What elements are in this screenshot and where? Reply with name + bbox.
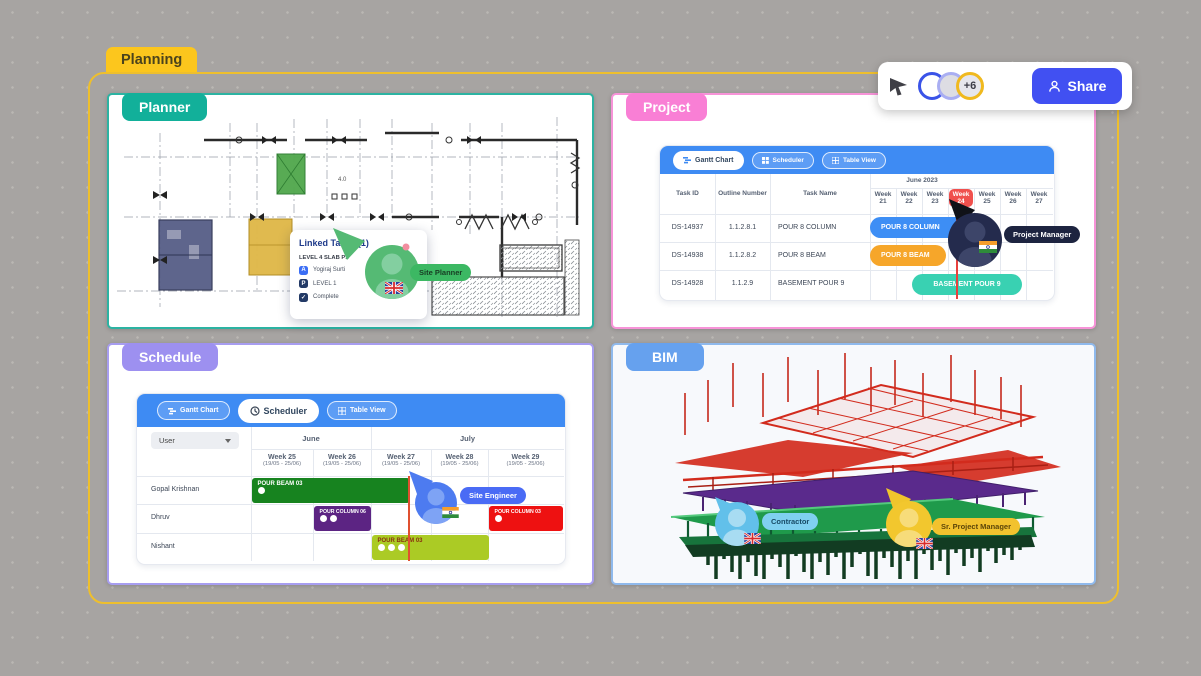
user-row-label: Gopal Krishnan — [151, 486, 199, 493]
status-badge-icon: ✓ — [299, 293, 308, 302]
cell-outline: 1.1.2.9 — [715, 280, 770, 287]
sr-project-manager-tag: Sr. Project Manager — [932, 518, 1020, 535]
share-button[interactable]: Share — [1032, 68, 1122, 104]
tab-table-view-label: Table View — [843, 157, 876, 164]
frame-tab-planning[interactable]: Planning — [106, 47, 197, 74]
site-engineer-tag: Site Engineer — [460, 487, 526, 504]
india-flag-icon — [442, 507, 459, 518]
tab-gantt-chart[interactable]: Gantt Chart — [673, 151, 744, 170]
gantt-bar-basement-pour-9[interactable]: BASEMENT POUR 9 — [912, 274, 1022, 295]
tab-gantt-chart[interactable]: Gantt Chart — [157, 401, 230, 420]
tab-table-view-label: Table View — [350, 407, 386, 414]
week-header: Week 29 (19/05 - 25/06) — [488, 454, 563, 467]
tab-scheduler[interactable]: Scheduler — [238, 399, 320, 423]
table-view-icon — [338, 407, 346, 415]
week-header: Week 21 — [872, 191, 894, 205]
user-filter-dropdown[interactable]: User — [151, 432, 239, 449]
share-button-label: Share — [1068, 78, 1107, 94]
chevron-down-icon — [225, 439, 231, 443]
month-header-july: July — [371, 434, 564, 443]
cell-task-name: BASEMENT POUR 9 — [778, 280, 868, 287]
whiteboard-canvas[interactable]: Planning Planner — [0, 0, 1201, 676]
india-flag-icon — [979, 241, 997, 253]
project-manager-tag: Project Manager — [1004, 226, 1080, 243]
contractor-tag: Contractor — [762, 513, 818, 530]
cell-task-id: DS-14938 — [660, 252, 715, 259]
schedule-bar-pour-beam-03[interactable]: POUR BEAM 03 — [252, 478, 410, 503]
uk-flag-icon — [385, 282, 403, 294]
month-header-june: June — [251, 434, 371, 443]
tab-scheduler-label: Scheduler — [264, 406, 308, 416]
user-row-label: Nishant — [151, 543, 175, 550]
person-icon — [1048, 80, 1061, 93]
gantt-chart-icon — [168, 407, 176, 415]
user-filter-label: User — [159, 436, 175, 445]
week-header: Week 27 (19/05 - 25/06) — [371, 454, 431, 467]
week-header: Week 22 — [898, 191, 920, 205]
tab-table-view[interactable]: Table View — [822, 152, 886, 169]
panel-project: Project Gantt Chart Scheduler — [611, 93, 1096, 329]
tab-gantt-chart-label: Gantt Chart — [695, 157, 734, 164]
panel-label-planner[interactable]: Planner — [122, 93, 207, 121]
svg-text:4.0: 4.0 — [338, 177, 347, 183]
assignee-badge: A — [299, 266, 308, 275]
col-header-task-id: Task ID — [660, 190, 715, 197]
scheduler-icon — [250, 406, 260, 416]
bim-3d-model — [613, 345, 1090, 579]
tab-scheduler-label: Scheduler — [773, 157, 804, 164]
panel-bim: BIM — [611, 343, 1096, 585]
gantt-chart-icon — [683, 156, 691, 164]
user-row-label: Dhruv — [151, 514, 170, 521]
cell-outline: 1.1.2.8.1 — [715, 224, 770, 231]
tab-table-view[interactable]: Table View — [327, 401, 397, 420]
cell-task-id: DS-14928 — [660, 280, 715, 287]
site-engineer-cursor — [407, 471, 465, 527]
table-view-icon — [832, 157, 839, 164]
uk-flag-icon — [916, 538, 933, 549]
gantt-bar-pour-8-beam[interactable]: POUR 8 BEAM — [870, 245, 946, 266]
project-toolbar: Gantt Chart Scheduler Table View — [660, 146, 1054, 174]
panel-planner: Planner — [107, 93, 594, 329]
pointer-arrow-icon[interactable] — [888, 76, 908, 96]
panel-label-project[interactable]: Project — [626, 93, 707, 121]
tab-scheduler[interactable]: Scheduler — [752, 152, 814, 169]
week-header: Week 28 (19/05 - 25/06) — [431, 454, 488, 467]
scheduler-icon — [762, 157, 769, 164]
week-header: Week 23 — [924, 191, 946, 205]
schedule-toolbar: Gantt Chart Scheduler Table View — [137, 394, 565, 427]
share-widget: +6 Share — [878, 62, 1132, 110]
panel-schedule: Schedule Gantt Chart Scheduler — [107, 343, 594, 585]
schedule-bar-pour-column-03[interactable]: POUR COLUMN 03 — [489, 506, 563, 531]
schedule-bar-pour-beam-03[interactable]: POUR BEAM 03 — [372, 535, 489, 560]
site-planner-tag: Site Planner — [410, 264, 471, 281]
cell-task-id: DS-14937 — [660, 224, 715, 231]
col-header-task-name: Task Name — [770, 190, 870, 197]
avatar-overflow-count: +6 — [964, 80, 977, 92]
schedule-card: Gantt Chart Scheduler Table View — [136, 393, 566, 565]
avatar-overflow-badge[interactable]: +6 — [956, 72, 984, 100]
col-header-outline-number: Outline Number — [715, 190, 770, 197]
panel-label-bim[interactable]: BIM — [626, 343, 704, 371]
cell-task-name: POUR 8 COLUMN — [778, 224, 868, 231]
tab-gantt-chart-label: Gantt Chart — [180, 407, 219, 414]
month-header: June 2023 — [870, 177, 974, 184]
week-header: Week 26 (19/05 - 25/06) — [313, 454, 371, 467]
uk-flag-icon — [744, 533, 761, 544]
schedule-bar-pour-column-06[interactable]: POUR COLUMN 06 — [314, 506, 371, 531]
cell-outline: 1.1.2.8.2 — [715, 252, 770, 259]
level-badge: P — [299, 279, 308, 288]
week-header: Week 25 (19/05 - 25/06) — [251, 454, 313, 467]
cell-task-name: POUR 8 BEAM — [778, 252, 868, 259]
panel-label-schedule[interactable]: Schedule — [122, 343, 218, 371]
